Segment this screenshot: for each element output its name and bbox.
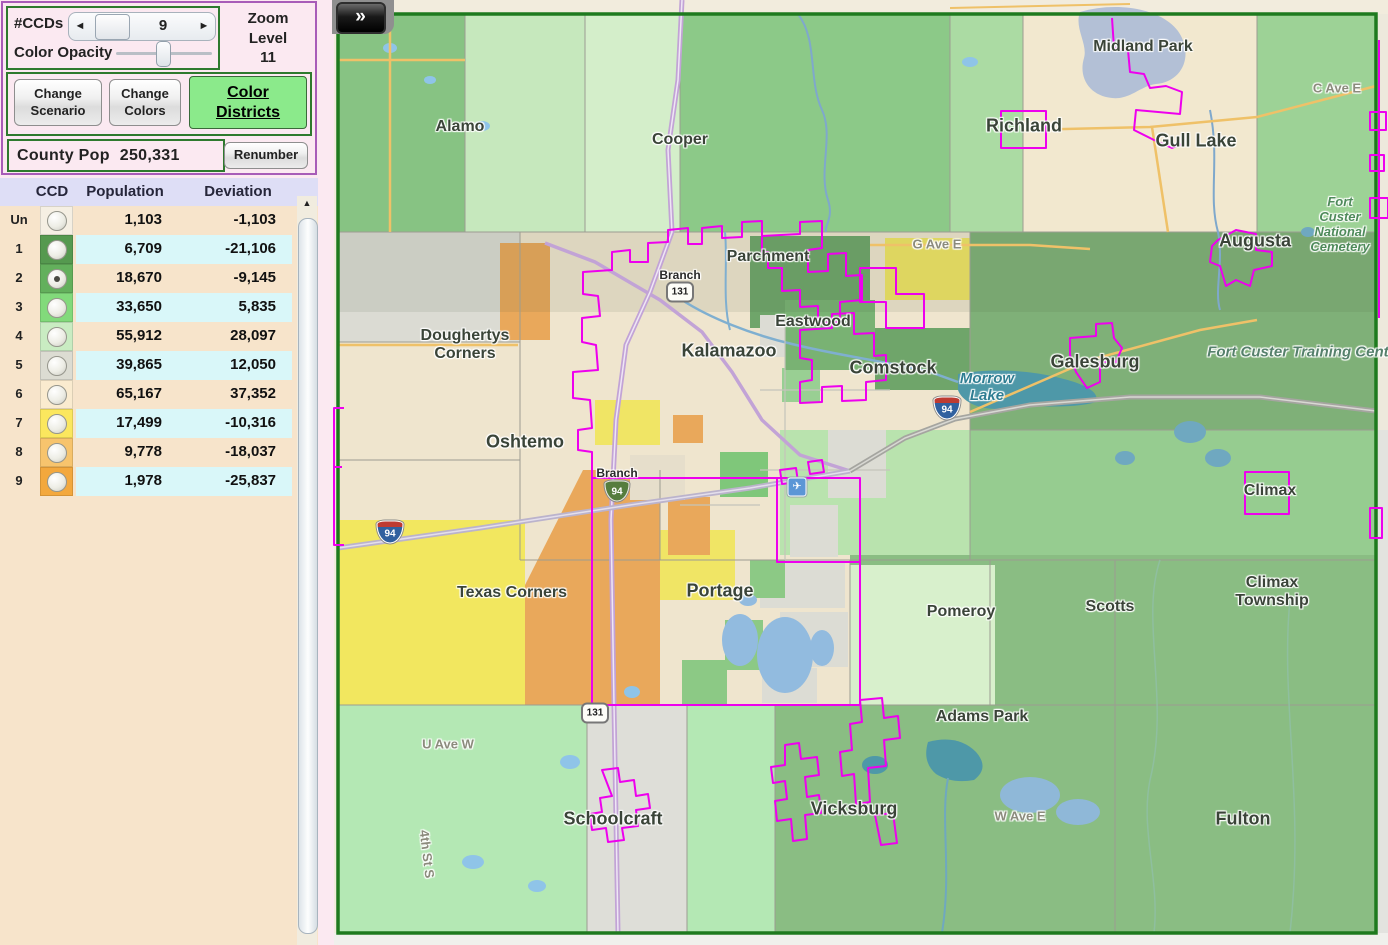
table-row: 89,778-18,037	[0, 438, 296, 467]
spinner-decrement-button[interactable]: ◄	[71, 13, 89, 40]
table-row: 91,978-25,837	[0, 467, 296, 496]
ccd-id: 3	[4, 299, 34, 314]
row-data: 9,778-18,037	[76, 438, 292, 467]
deviation-value: 5,835	[172, 298, 276, 315]
deviation-value: 28,097	[172, 327, 276, 344]
level-word: Level	[223, 29, 313, 49]
ccd-count-spinner[interactable]: ◄ 9 ►	[68, 12, 216, 41]
spinner-thumb[interactable]	[95, 14, 130, 40]
sidebar: #CCDs ◄ 9 ► Color Opacity Zoom Level 11	[0, 0, 318, 945]
row-data: 39,86512,050	[76, 351, 292, 380]
population-value: 18,670	[76, 269, 162, 286]
district-color-cell	[40, 438, 73, 467]
ccd-id: 4	[4, 328, 34, 343]
row-data: 17,499-10,316	[76, 409, 292, 438]
row-data: 1,978-25,837	[76, 467, 292, 496]
row-data: 18,670-9,145	[76, 264, 292, 293]
district-color-cell	[40, 235, 73, 264]
row-data: 1,103-1,103	[76, 206, 292, 235]
table-row: 333,6505,835	[0, 293, 296, 322]
population-value: 55,912	[76, 327, 162, 344]
scrollbar-up-icon[interactable]: ▲	[297, 198, 317, 216]
deviation-value: -10,316	[172, 414, 276, 431]
population-value: 6,709	[76, 240, 162, 257]
district-color-cell	[40, 380, 73, 409]
population-value: 1,103	[76, 211, 162, 228]
table-row: 665,16737,352	[0, 380, 296, 409]
ccd-id: 7	[4, 415, 34, 430]
row-data: 55,91228,097	[76, 322, 292, 351]
ccd-id: 9	[4, 473, 34, 488]
ccd-select-radio[interactable]	[47, 211, 67, 231]
ccd-select-radio[interactable]	[47, 385, 67, 405]
table-header: CCD Population Deviation	[0, 178, 318, 206]
ccd-select-radio[interactable]	[47, 327, 67, 347]
deviation-value: -21,106	[172, 240, 276, 257]
table-row: 717,499-10,316	[0, 409, 296, 438]
sidebar-gutter	[318, 0, 330, 945]
ccd-select-radio[interactable]	[47, 356, 67, 376]
district-color-cell	[40, 409, 73, 438]
change-colors-button[interactable]: Change Colors	[109, 79, 181, 126]
deviation-value: -18,037	[172, 443, 276, 460]
table-row: 539,86512,050	[0, 351, 296, 380]
actions-box: Change Scenario Change Colors Color Dist…	[6, 72, 312, 136]
collapse-sidebar-button[interactable]: »	[336, 2, 386, 34]
table-row: 218,670-9,145	[0, 264, 296, 293]
population-value: 33,650	[76, 298, 162, 315]
district-color-cell	[40, 206, 73, 235]
map-canvas[interactable]: AlamoCooperRichlandMidland ParkGull Lake…	[330, 0, 1388, 945]
ccd-id: 2	[4, 270, 34, 285]
population-value: 39,865	[76, 356, 162, 373]
slider-thumb[interactable]	[156, 41, 171, 67]
ccd-select-radio[interactable]	[47, 472, 67, 492]
ccd-count-value: 9	[133, 17, 193, 34]
population-value: 9,778	[76, 443, 162, 460]
county-population-box: County Pop250,331	[7, 139, 225, 172]
district-color-cell	[40, 467, 73, 496]
ccd-id: 6	[4, 386, 34, 401]
zoom-word: Zoom	[223, 9, 313, 29]
ccd-count-box: #CCDs ◄ 9 ► Color Opacity	[6, 6, 220, 70]
ccd-id: 5	[4, 357, 34, 372]
ccd-id: 1	[4, 241, 34, 256]
table-row: 455,91228,097	[0, 322, 296, 351]
deviation-value: 37,352	[172, 385, 276, 402]
color-districts-button[interactable]: Color Districts	[189, 76, 307, 129]
districting-app: #CCDs ◄ 9 ► Color Opacity Zoom Level 11	[0, 0, 1388, 945]
spinner-increment-button[interactable]: ►	[195, 13, 213, 40]
ccd-select-radio[interactable]	[47, 298, 67, 318]
ccd-select-radio[interactable]	[47, 240, 67, 260]
ccd-select-radio[interactable]	[47, 269, 67, 289]
table-row: 16,709-21,106	[0, 235, 296, 264]
scrollbar-thumb[interactable]	[298, 218, 318, 934]
county-pop-label: County Pop	[17, 147, 110, 164]
row-data: 33,6505,835	[76, 293, 292, 322]
color-opacity-slider[interactable]	[116, 40, 212, 66]
control-panel: #CCDs ◄ 9 ► Color Opacity Zoom Level 11	[1, 1, 317, 175]
district-color-cell	[40, 264, 73, 293]
population-value: 17,499	[76, 414, 162, 431]
row-data: 65,16737,352	[76, 380, 292, 409]
renumber-button[interactable]: Renumber	[224, 142, 308, 169]
district-color-cell	[40, 322, 73, 351]
district-color-cell	[40, 293, 73, 322]
deviation-value: -1,103	[172, 211, 276, 228]
ccd-id: Un	[4, 212, 34, 227]
column-header-population: Population	[72, 183, 178, 200]
row-data: 6,709-21,106	[76, 235, 292, 264]
deviation-value: -9,145	[172, 269, 276, 286]
ccd-table: Un1,103-1,10316,709-21,106218,670-9,1453…	[0, 206, 296, 496]
table-row: Un1,103-1,103	[0, 206, 296, 235]
county-pop-value: 250,331	[120, 147, 180, 164]
ccd-select-radio[interactable]	[47, 443, 67, 463]
county-map-svg	[330, 0, 1388, 945]
change-scenario-button[interactable]: Change Scenario	[14, 79, 102, 126]
ccd-id: 8	[4, 444, 34, 459]
deviation-value: -25,837	[172, 472, 276, 489]
deviation-value: 12,050	[172, 356, 276, 373]
color-opacity-label: Color Opacity	[14, 44, 112, 61]
population-value: 1,978	[76, 472, 162, 489]
zoom-level-value: 11	[223, 48, 313, 68]
column-header-ccd: CCD	[28, 183, 76, 200]
ccds-label: #CCDs	[14, 15, 63, 32]
zoom-level-indicator: Zoom Level 11	[223, 9, 313, 68]
district-color-cell	[40, 351, 73, 380]
ccd-select-radio[interactable]	[47, 414, 67, 434]
population-value: 65,167	[76, 385, 162, 402]
column-header-deviation: Deviation	[190, 183, 286, 200]
